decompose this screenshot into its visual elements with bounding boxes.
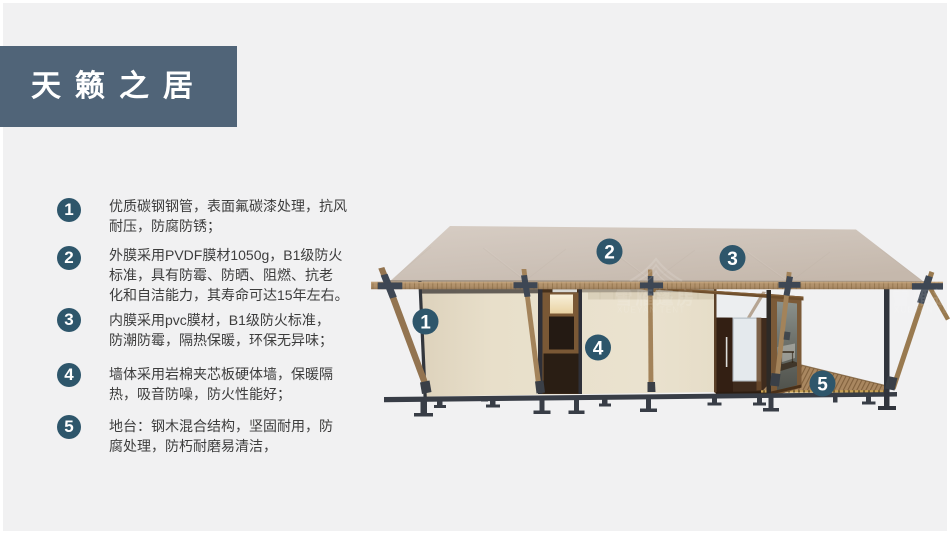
svg-text:1: 1 (420, 313, 431, 334)
svg-text:3: 3 (727, 249, 738, 270)
svg-text:2: 2 (604, 243, 615, 264)
svg-text:XUEYAN TENT: XUEYAN TENT (617, 306, 685, 315)
svg-text:5: 5 (817, 375, 828, 396)
svg-text:XUEYAN TENT: XUEYAN TENT (894, 306, 950, 315)
svg-text:4: 4 (593, 339, 604, 360)
